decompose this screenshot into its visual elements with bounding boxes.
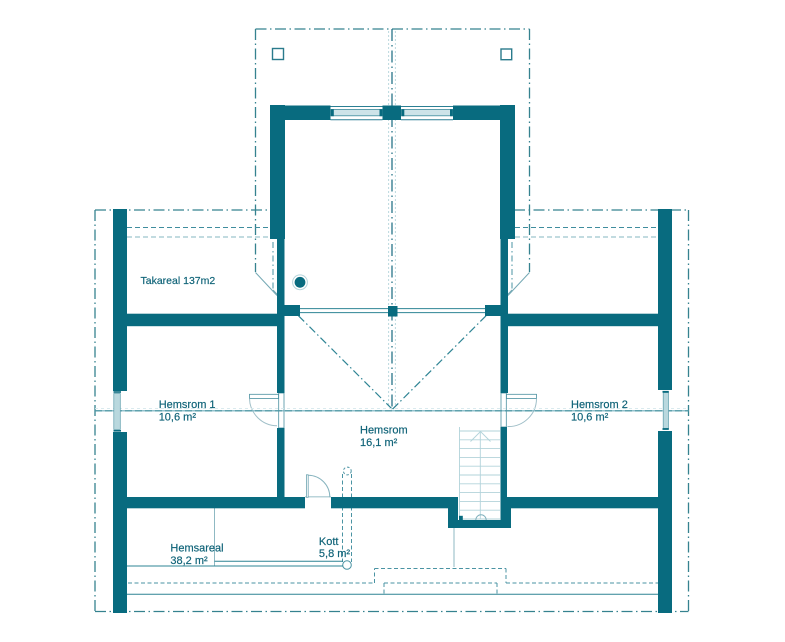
svg-text:Kott: Kott xyxy=(319,536,339,548)
svg-text:Takareal 137m2: Takareal 137m2 xyxy=(141,275,216,287)
svg-text:Hemsrom 1: Hemsrom 1 xyxy=(159,399,216,411)
svg-text:10,6 m²: 10,6 m² xyxy=(571,411,609,423)
svg-text:10,6 m²: 10,6 m² xyxy=(159,411,197,423)
svg-text:5,8 m²: 5,8 m² xyxy=(319,548,351,560)
svg-text:16,1 m²: 16,1 m² xyxy=(360,437,398,449)
svg-text:Hemsareal: Hemsareal xyxy=(170,543,223,555)
svg-text:38,2 m²: 38,2 m² xyxy=(170,555,208,567)
svg-text:Hemsrom 2: Hemsrom 2 xyxy=(571,399,628,411)
svg-text:Hemsrom: Hemsrom xyxy=(360,425,408,437)
